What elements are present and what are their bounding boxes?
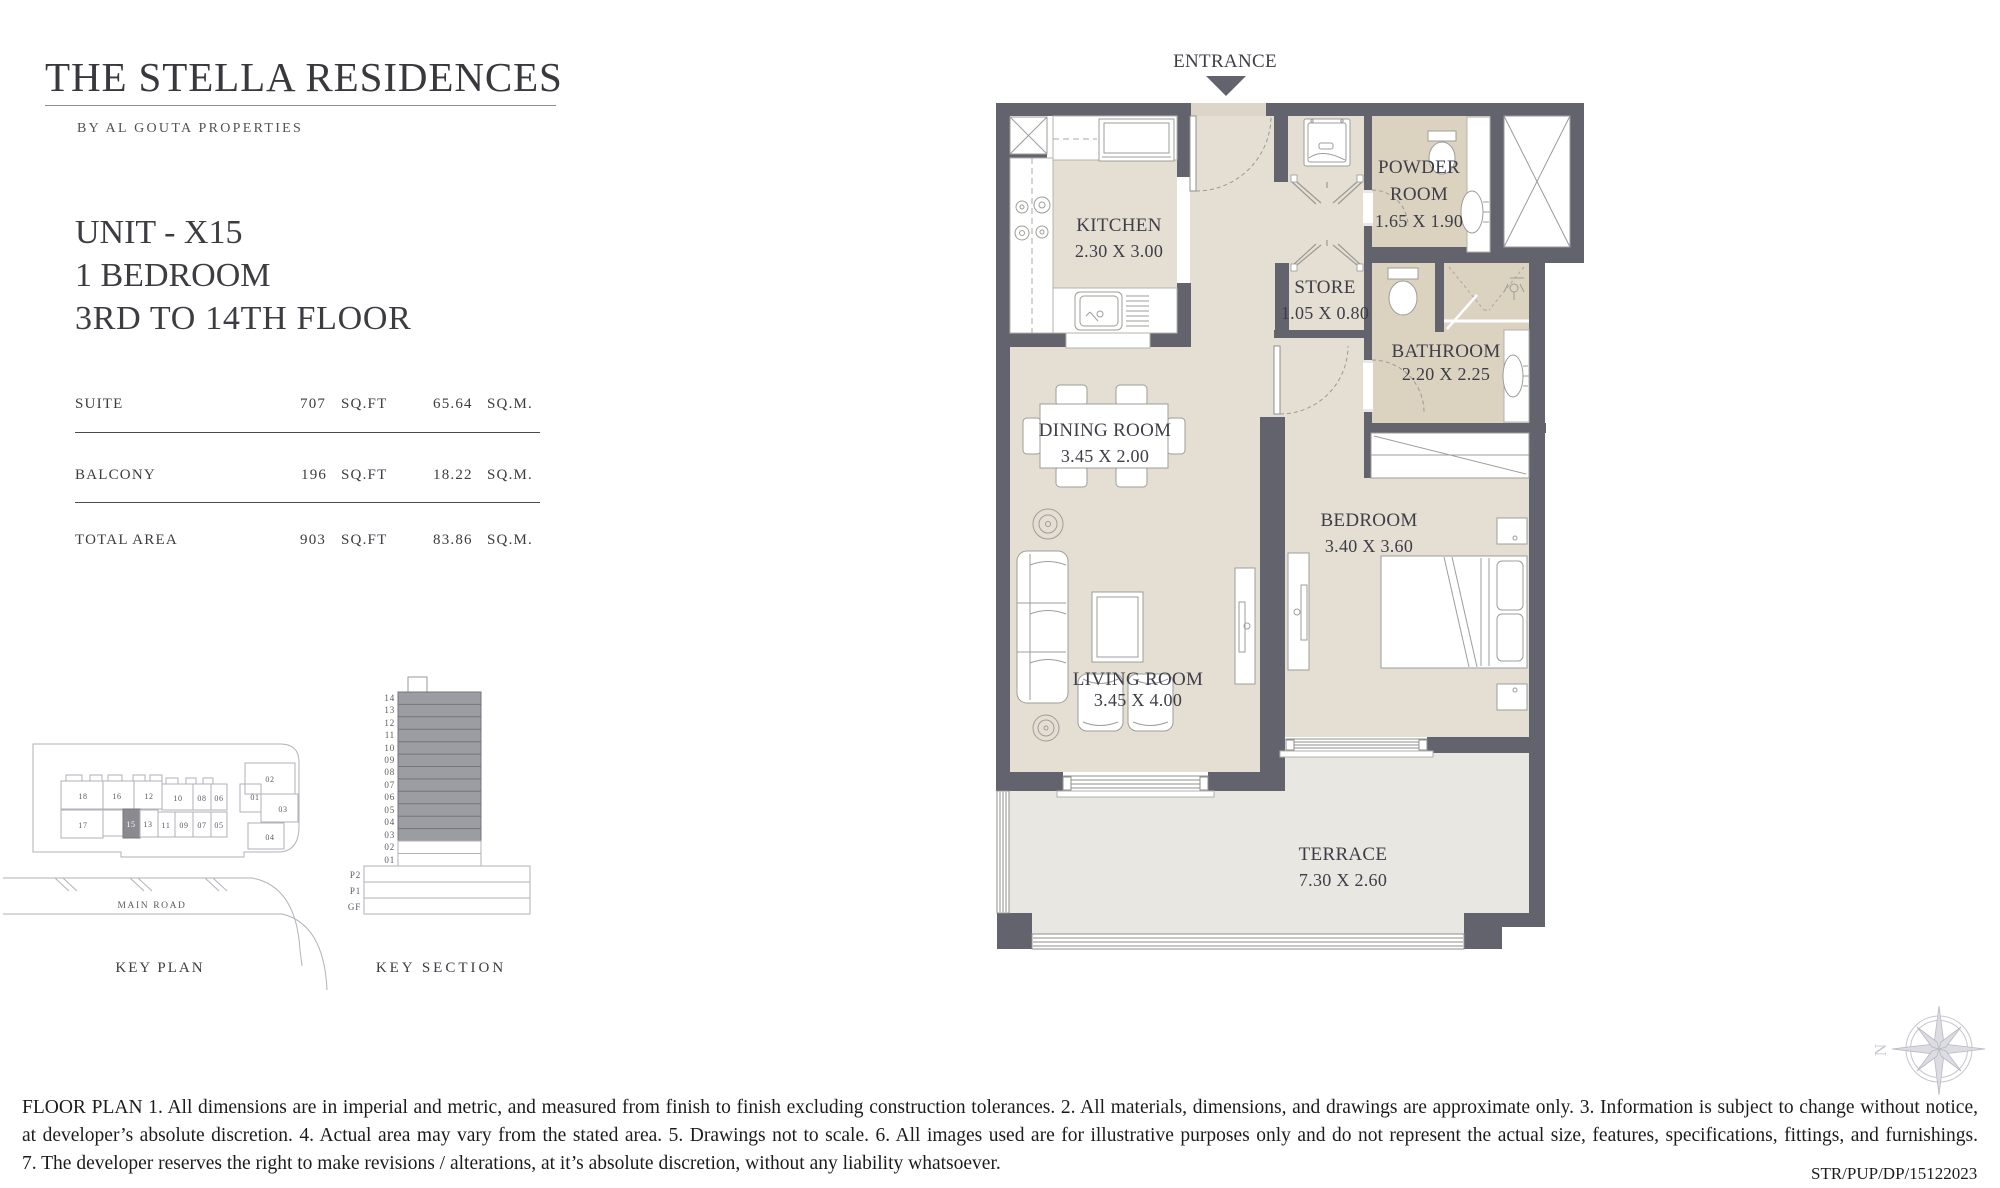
- svg-text:LIVING ROOM: LIVING ROOM: [1073, 669, 1203, 690]
- svg-text:17: 17: [78, 821, 87, 830]
- svg-text:11: 11: [385, 730, 395, 740]
- svg-text:01: 01: [384, 855, 395, 865]
- svg-text:04: 04: [265, 833, 274, 842]
- svg-text:TERRACE: TERRACE: [1299, 844, 1388, 865]
- svg-text:08: 08: [197, 794, 206, 803]
- svg-text:06: 06: [384, 792, 395, 802]
- svg-text:STORE: STORE: [1294, 277, 1355, 298]
- svg-text:P2: P2: [350, 870, 361, 880]
- svg-text:3.45 X 4.00: 3.45 X 4.00: [1094, 690, 1182, 710]
- svg-text:14: 14: [384, 693, 395, 703]
- svg-text:13: 13: [143, 820, 152, 829]
- svg-text:02: 02: [265, 775, 274, 784]
- svg-text:GF: GF: [348, 902, 361, 912]
- svg-text:10: 10: [384, 743, 395, 753]
- svg-text:04: 04: [384, 817, 395, 827]
- svg-text:15: 15: [126, 820, 135, 829]
- svg-text:ROOM: ROOM: [1390, 184, 1448, 205]
- svg-text:1.05 X 0.80: 1.05 X 0.80: [1281, 303, 1369, 323]
- svg-text:N: N: [1871, 1044, 1890, 1056]
- svg-text:03: 03: [384, 830, 395, 840]
- svg-text:08: 08: [384, 767, 395, 777]
- svg-text:05: 05: [384, 805, 395, 815]
- svg-text:1.65 X 1.90: 1.65 X 1.90: [1375, 211, 1463, 231]
- svg-text:POWDER: POWDER: [1378, 157, 1460, 178]
- svg-text:KITCHEN: KITCHEN: [1076, 215, 1161, 236]
- svg-text:12: 12: [384, 718, 395, 728]
- svg-text:13: 13: [384, 705, 395, 715]
- svg-text:BATHROOM: BATHROOM: [1391, 341, 1500, 362]
- svg-text:06: 06: [214, 794, 223, 803]
- svg-text:3.40 X 3.60: 3.40 X 3.60: [1325, 536, 1413, 556]
- svg-text:MAIN ROAD: MAIN ROAD: [117, 901, 186, 911]
- svg-text:ENTRANCE: ENTRANCE: [1173, 51, 1277, 72]
- svg-text:DINING ROOM: DINING ROOM: [1039, 420, 1172, 441]
- svg-text:16: 16: [112, 792, 121, 801]
- svg-text:09: 09: [179, 821, 188, 830]
- svg-text:09: 09: [384, 755, 395, 765]
- svg-text:02: 02: [384, 842, 395, 852]
- svg-text:11: 11: [162, 821, 171, 830]
- svg-text:05: 05: [214, 821, 223, 830]
- svg-text:12: 12: [144, 792, 153, 801]
- svg-text:07: 07: [197, 821, 206, 830]
- svg-text:07: 07: [384, 780, 395, 790]
- svg-text:P1: P1: [350, 886, 361, 896]
- svg-text:2.20 X 2.25: 2.20 X 2.25: [1402, 364, 1490, 384]
- svg-text:10: 10: [173, 794, 182, 803]
- svg-text:3.45 X 2.00: 3.45 X 2.00: [1061, 446, 1149, 466]
- svg-text:01: 01: [250, 793, 259, 802]
- svg-text:18: 18: [78, 792, 87, 801]
- svg-text:BEDROOM: BEDROOM: [1320, 510, 1417, 531]
- svg-text:7.30 X 2.60: 7.30 X 2.60: [1299, 870, 1387, 890]
- svg-text:2.30 X 3.00: 2.30 X 3.00: [1075, 241, 1163, 261]
- svg-text:03: 03: [278, 805, 287, 814]
